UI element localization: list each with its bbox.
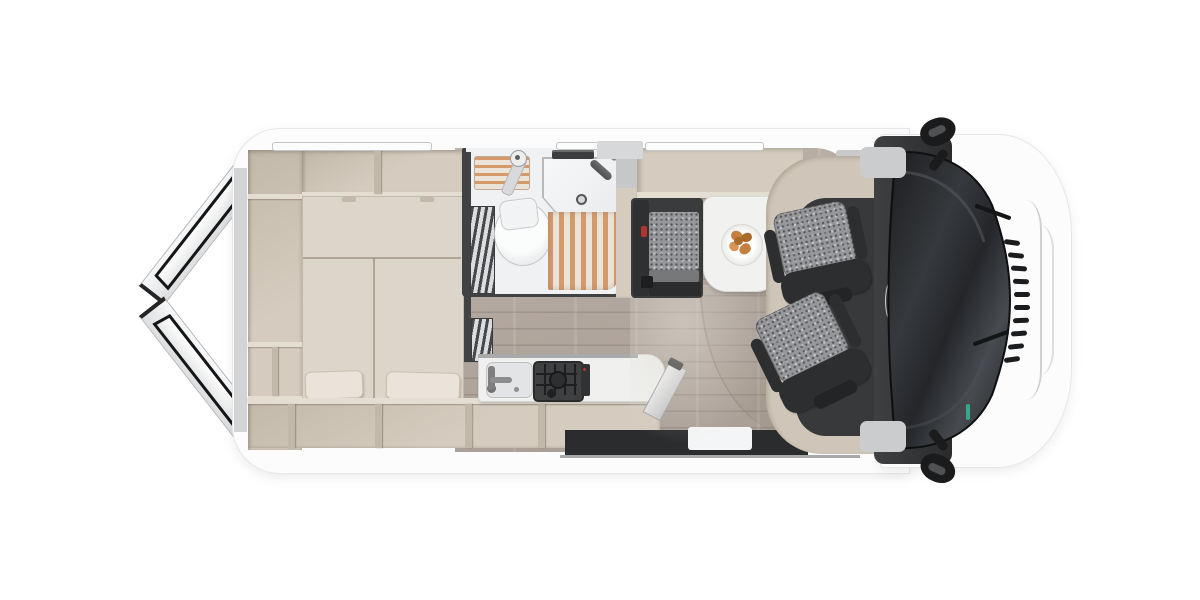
- counter-back-edge: [478, 354, 638, 358]
- wardrobe-shelf-edge: [248, 194, 302, 199]
- rear-doorway-recess: [234, 168, 247, 432]
- roof-vent: [552, 150, 594, 159]
- toilet-lid: [498, 197, 539, 231]
- sink-drain: [514, 387, 519, 392]
- windshield: [884, 142, 1020, 458]
- stove-knob: [547, 389, 556, 398]
- camper-floorplan-scene: carado: [0, 0, 1200, 600]
- body-junction-notch-bottom: [860, 421, 906, 452]
- bottom-row-divider: [538, 404, 545, 448]
- pivot-pin: [515, 155, 520, 160]
- croissant: [734, 237, 743, 245]
- glass-sensor-mark: [966, 404, 970, 420]
- control-indicator: [583, 368, 586, 371]
- bottom-row-divider: [465, 404, 472, 448]
- cowl-vent: [1011, 265, 1027, 271]
- roof-window-bedroom: [272, 142, 432, 151]
- seatbelt-buckle: [641, 226, 647, 237]
- overhead-shelf-rear: [302, 150, 464, 194]
- bench-cushion: [649, 212, 699, 270]
- pillow-right: [386, 371, 461, 401]
- bed-strap: [342, 197, 356, 202]
- hood-seam: [1040, 225, 1054, 375]
- door-rail: [560, 455, 860, 458]
- roof-window-dinette: [645, 142, 764, 151]
- stove-burner: [549, 371, 567, 389]
- bed-seam-vertical: [373, 258, 375, 399]
- bottom-row-divider: [375, 404, 382, 448]
- sink-faucet-spout: [490, 377, 512, 383]
- bench-cushion-edge: [649, 270, 699, 282]
- wardrobe-subdivider: [272, 347, 278, 396]
- bench-base: [649, 282, 701, 296]
- wall-gray-piece: [597, 141, 643, 159]
- folding-shower-screen: [470, 206, 495, 294]
- roof-window-bathroom: [556, 142, 599, 150]
- bed-strap: [420, 197, 434, 202]
- bench-bracket: [641, 276, 653, 288]
- breakfast-plate: [721, 224, 763, 266]
- bed-seam-horizontal: [303, 257, 461, 259]
- dinette-light-patch: [630, 285, 780, 445]
- body-junction-notch-top: [860, 147, 906, 178]
- basin-drain: [576, 194, 587, 205]
- pillow-left: [305, 370, 364, 400]
- bottom-row-divider: [288, 404, 295, 448]
- shelf-divider: [374, 150, 381, 194]
- shower-slatted-floor: [548, 212, 618, 290]
